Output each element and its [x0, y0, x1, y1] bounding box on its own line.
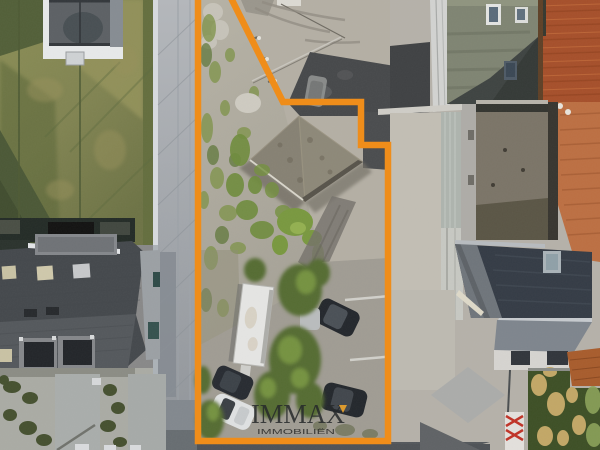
svg-text:IMMAX: IMMAX: [251, 398, 345, 429]
svg-text:IMMOBILIËN: IMMOBILIËN: [257, 428, 335, 436]
